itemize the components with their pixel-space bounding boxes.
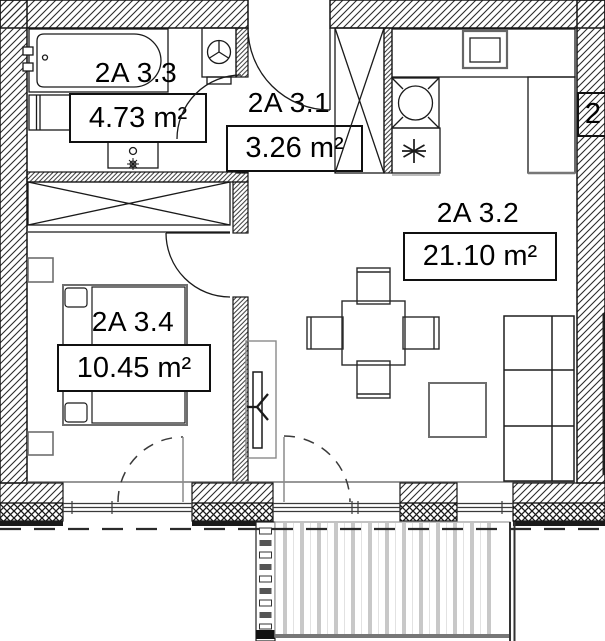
plan-drawing	[0, 0, 605, 641]
sill-4	[513, 521, 605, 526]
bed	[63, 285, 187, 425]
wall-bath-upper	[236, 28, 248, 77]
balcony-front-edge	[275, 634, 510, 638]
kitchen	[392, 29, 575, 175]
dining-table	[342, 301, 405, 365]
window-living-1	[273, 501, 400, 514]
washing-machine	[29, 95, 80, 130]
bathtub-drain	[43, 55, 48, 60]
bathtub	[23, 29, 168, 92]
window-bedroom	[63, 501, 192, 514]
kitchen-counter-right	[528, 77, 575, 173]
kitchen-appliance	[463, 31, 507, 68]
coffee-table	[429, 383, 486, 437]
ventilation-unit	[202, 28, 236, 84]
chair-right	[403, 317, 439, 349]
bottom-facade	[0, 482, 605, 526]
pier-3	[400, 483, 457, 503]
balcony	[0, 522, 605, 641]
kitchen-counter-top	[392, 29, 575, 77]
kitchen-sink	[392, 78, 439, 128]
bedroom-furniture	[28, 182, 230, 455]
wall-right	[577, 0, 605, 483]
sill-1	[0, 521, 63, 526]
chair-top	[357, 268, 390, 304]
wall-left	[0, 0, 27, 483]
wall-top-right	[330, 0, 605, 28]
floor-plan: 2A 3.3 4.73 m² 2A 3.1 3.26 m² 2A 3.2 21.…	[0, 0, 605, 641]
pier-1-insulation	[0, 503, 63, 521]
pier-4	[513, 483, 605, 503]
window-living-2	[457, 501, 513, 514]
chair-bottom	[357, 361, 390, 398]
tv-unit	[246, 341, 276, 458]
chair-left	[307, 317, 343, 349]
pillow	[65, 288, 87, 307]
interior-walls	[27, 28, 392, 483]
bathroom-fixtures	[23, 28, 236, 170]
wall-bath-lower	[236, 139, 248, 173]
washbasin	[108, 135, 158, 170]
pier-2-insulation	[192, 503, 273, 521]
wall-bedroom-upper	[233, 182, 248, 233]
wall-bath-bedroom	[27, 172, 248, 182]
pier-2	[192, 483, 273, 503]
stove	[392, 128, 440, 173]
balcony-deck	[275, 522, 515, 641]
balcony-divider	[256, 522, 275, 641]
nightstand	[28, 258, 53, 282]
sofa	[504, 316, 574, 481]
toilet	[80, 97, 145, 128]
dining-set	[307, 268, 439, 398]
wall-top-left	[0, 0, 248, 28]
outer-walls	[0, 0, 605, 483]
pier-1	[0, 483, 63, 503]
living-furniture	[246, 268, 604, 481]
nightstand	[28, 432, 53, 455]
bedroom-wardrobe	[28, 182, 230, 232]
pier-4-insulation	[513, 503, 605, 521]
tv-bracket	[247, 394, 268, 420]
pier-3-insulation	[400, 503, 457, 521]
wall-hall-kitchen	[384, 28, 392, 173]
pillow	[65, 403, 87, 422]
